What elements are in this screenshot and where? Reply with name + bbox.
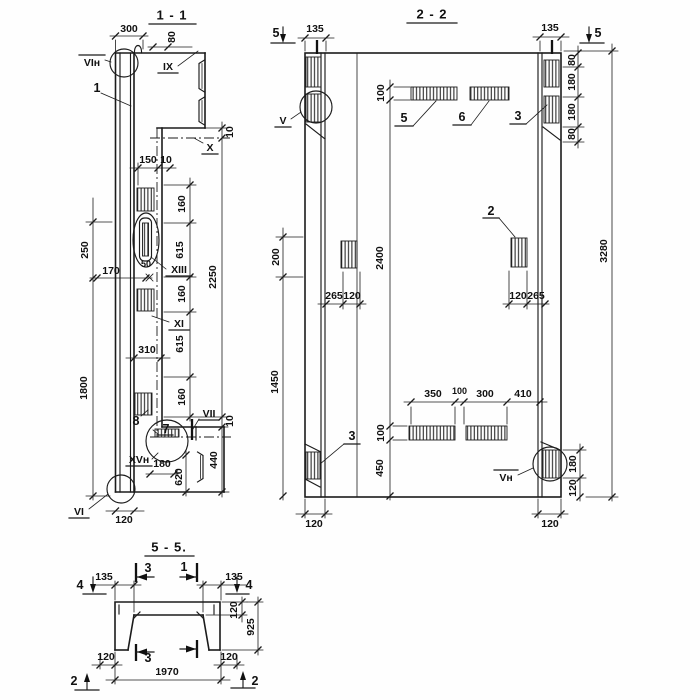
item-5-label: 5 bbox=[401, 111, 408, 125]
dim-80: 80 bbox=[166, 31, 178, 43]
dim-100: 100 bbox=[375, 84, 387, 102]
dim-135: 135 bbox=[225, 571, 243, 583]
dim-120: 120 bbox=[115, 514, 133, 526]
dim-120: 120 bbox=[97, 651, 115, 663]
dim-440: 440 bbox=[208, 451, 220, 469]
node-v-label: V bbox=[279, 115, 286, 127]
cut-5-label: 5 bbox=[273, 26, 280, 40]
dim-120: 120 bbox=[343, 290, 361, 302]
dim-265: 265 bbox=[527, 290, 545, 302]
node-xiii-label: XIII bbox=[171, 264, 187, 276]
node-ix-label: IX bbox=[163, 61, 173, 73]
dim-80: 80 bbox=[566, 128, 578, 140]
cut-2-label: 2 bbox=[71, 674, 78, 688]
dim-450: 450 bbox=[374, 459, 386, 477]
dim-300: 300 bbox=[120, 23, 138, 35]
dim-180: 180 bbox=[153, 458, 171, 470]
cut-2-label: 2 bbox=[252, 674, 259, 688]
dim-120: 120 bbox=[220, 651, 238, 663]
section-5-5-title: 5 - 5. bbox=[151, 540, 187, 555]
dim-135: 135 bbox=[541, 22, 559, 34]
anchor-plate bbox=[137, 289, 154, 311]
cut-marks-3-1: 3 1 3 bbox=[136, 560, 197, 665]
section-2-2-title: 2 - 2 bbox=[416, 7, 447, 22]
dim-100: 100 bbox=[452, 386, 467, 396]
dim-1450: 1450 bbox=[269, 370, 281, 394]
dim-2400: 2400 bbox=[374, 246, 386, 270]
dim-10: 10 bbox=[160, 154, 172, 166]
channel-outline bbox=[115, 602, 220, 650]
dim-10: 10 bbox=[224, 415, 236, 427]
cut-3-label: 3 bbox=[145, 651, 152, 665]
anchor-plate bbox=[341, 241, 357, 268]
panel-sections-drawing: 1 - 1 bbox=[0, 0, 700, 700]
dim-2250: 2250 bbox=[207, 265, 219, 289]
anchor-plate bbox=[135, 393, 152, 415]
cut-3-label: 3 bbox=[145, 561, 152, 575]
anchor-bar-5 bbox=[411, 87, 457, 100]
dim-120: 120 bbox=[305, 518, 323, 530]
lifting-loop bbox=[134, 46, 141, 54]
item-1-label: 1 bbox=[94, 81, 101, 95]
node-vii-label: VII bbox=[203, 408, 216, 420]
dim-120: 120 bbox=[509, 290, 527, 302]
anchor-plate bbox=[137, 188, 154, 211]
marks-1-1: VIн 1 IX X XIII XI 8 7 VII XVн bbox=[69, 51, 219, 518]
dim-1970: 1970 bbox=[155, 666, 179, 678]
dim-180: 180 bbox=[567, 455, 579, 473]
item-2-label: 2 bbox=[488, 204, 495, 218]
item-3-label: 3 bbox=[349, 429, 356, 443]
dim-925: 925 bbox=[245, 618, 257, 636]
cut-4-label: 4 bbox=[77, 578, 84, 592]
section-2-2: 2 - 2 bbox=[269, 7, 618, 531]
cut-4-label: 4 bbox=[246, 578, 253, 592]
dim-1800: 1800 bbox=[78, 376, 90, 400]
dim-160: 160 bbox=[176, 388, 188, 406]
dim-160: 160 bbox=[176, 195, 188, 213]
anchor-bar bbox=[409, 426, 455, 440]
dim-135: 135 bbox=[306, 23, 324, 35]
dim-50: 50 bbox=[141, 259, 151, 269]
dim-620: 620 bbox=[173, 468, 185, 486]
dim-170: 170 bbox=[102, 265, 120, 277]
dim-615: 615 bbox=[174, 241, 186, 259]
item-6-label: 6 bbox=[459, 110, 466, 124]
item-3-label: 3 bbox=[515, 109, 522, 123]
section-5-5: 5 - 5. 3 1 3 bbox=[71, 540, 263, 691]
dim-120: 120 bbox=[567, 479, 579, 497]
dim-180: 180 bbox=[566, 73, 578, 91]
node-vin-label: VIн bbox=[84, 57, 100, 69]
dim-410: 410 bbox=[514, 388, 532, 400]
anchor-plate-2 bbox=[511, 238, 527, 267]
node-x-label: X bbox=[206, 142, 213, 154]
dim-265: 265 bbox=[325, 290, 343, 302]
node-xi-label: XI bbox=[174, 318, 184, 330]
dim-180: 180 bbox=[566, 103, 578, 121]
dim-3280: 3280 bbox=[598, 239, 610, 263]
dim-120: 120 bbox=[228, 601, 240, 619]
node-vn-label: Vн bbox=[499, 472, 512, 484]
section-1-1: 1 - 1 bbox=[69, 8, 236, 527]
dim-300: 300 bbox=[476, 388, 494, 400]
anchor-bar bbox=[466, 426, 507, 440]
section-1-1-title: 1 - 1 bbox=[156, 8, 187, 23]
dim-120: 120 bbox=[541, 518, 559, 530]
item-7-label: 7 bbox=[163, 422, 170, 436]
dim-135: 135 bbox=[95, 571, 113, 583]
dim-250: 250 bbox=[79, 241, 91, 259]
dim-80: 80 bbox=[566, 54, 578, 66]
item-8-label: 8 bbox=[133, 414, 140, 428]
dim-150: 150 bbox=[139, 154, 157, 166]
dim-160: 160 bbox=[176, 285, 188, 303]
engineering-drawing-sheet: 1 - 1 bbox=[0, 0, 700, 700]
cut-5-label: 5 bbox=[595, 26, 602, 40]
dim-200: 200 bbox=[270, 248, 282, 266]
embedded-items bbox=[133, 188, 179, 437]
slot-insert-core bbox=[143, 223, 149, 256]
node-vi-label: VI bbox=[74, 506, 84, 518]
node-xvn-label: XVн bbox=[129, 454, 149, 466]
anchor-bar-6 bbox=[470, 87, 509, 100]
dim-310: 310 bbox=[138, 344, 156, 356]
dim-615: 615 bbox=[174, 335, 186, 353]
dim-100: 100 bbox=[375, 424, 387, 442]
dim-10: 10 bbox=[224, 126, 236, 138]
dim-350: 350 bbox=[424, 388, 442, 400]
cut-1-label: 1 bbox=[181, 560, 188, 574]
